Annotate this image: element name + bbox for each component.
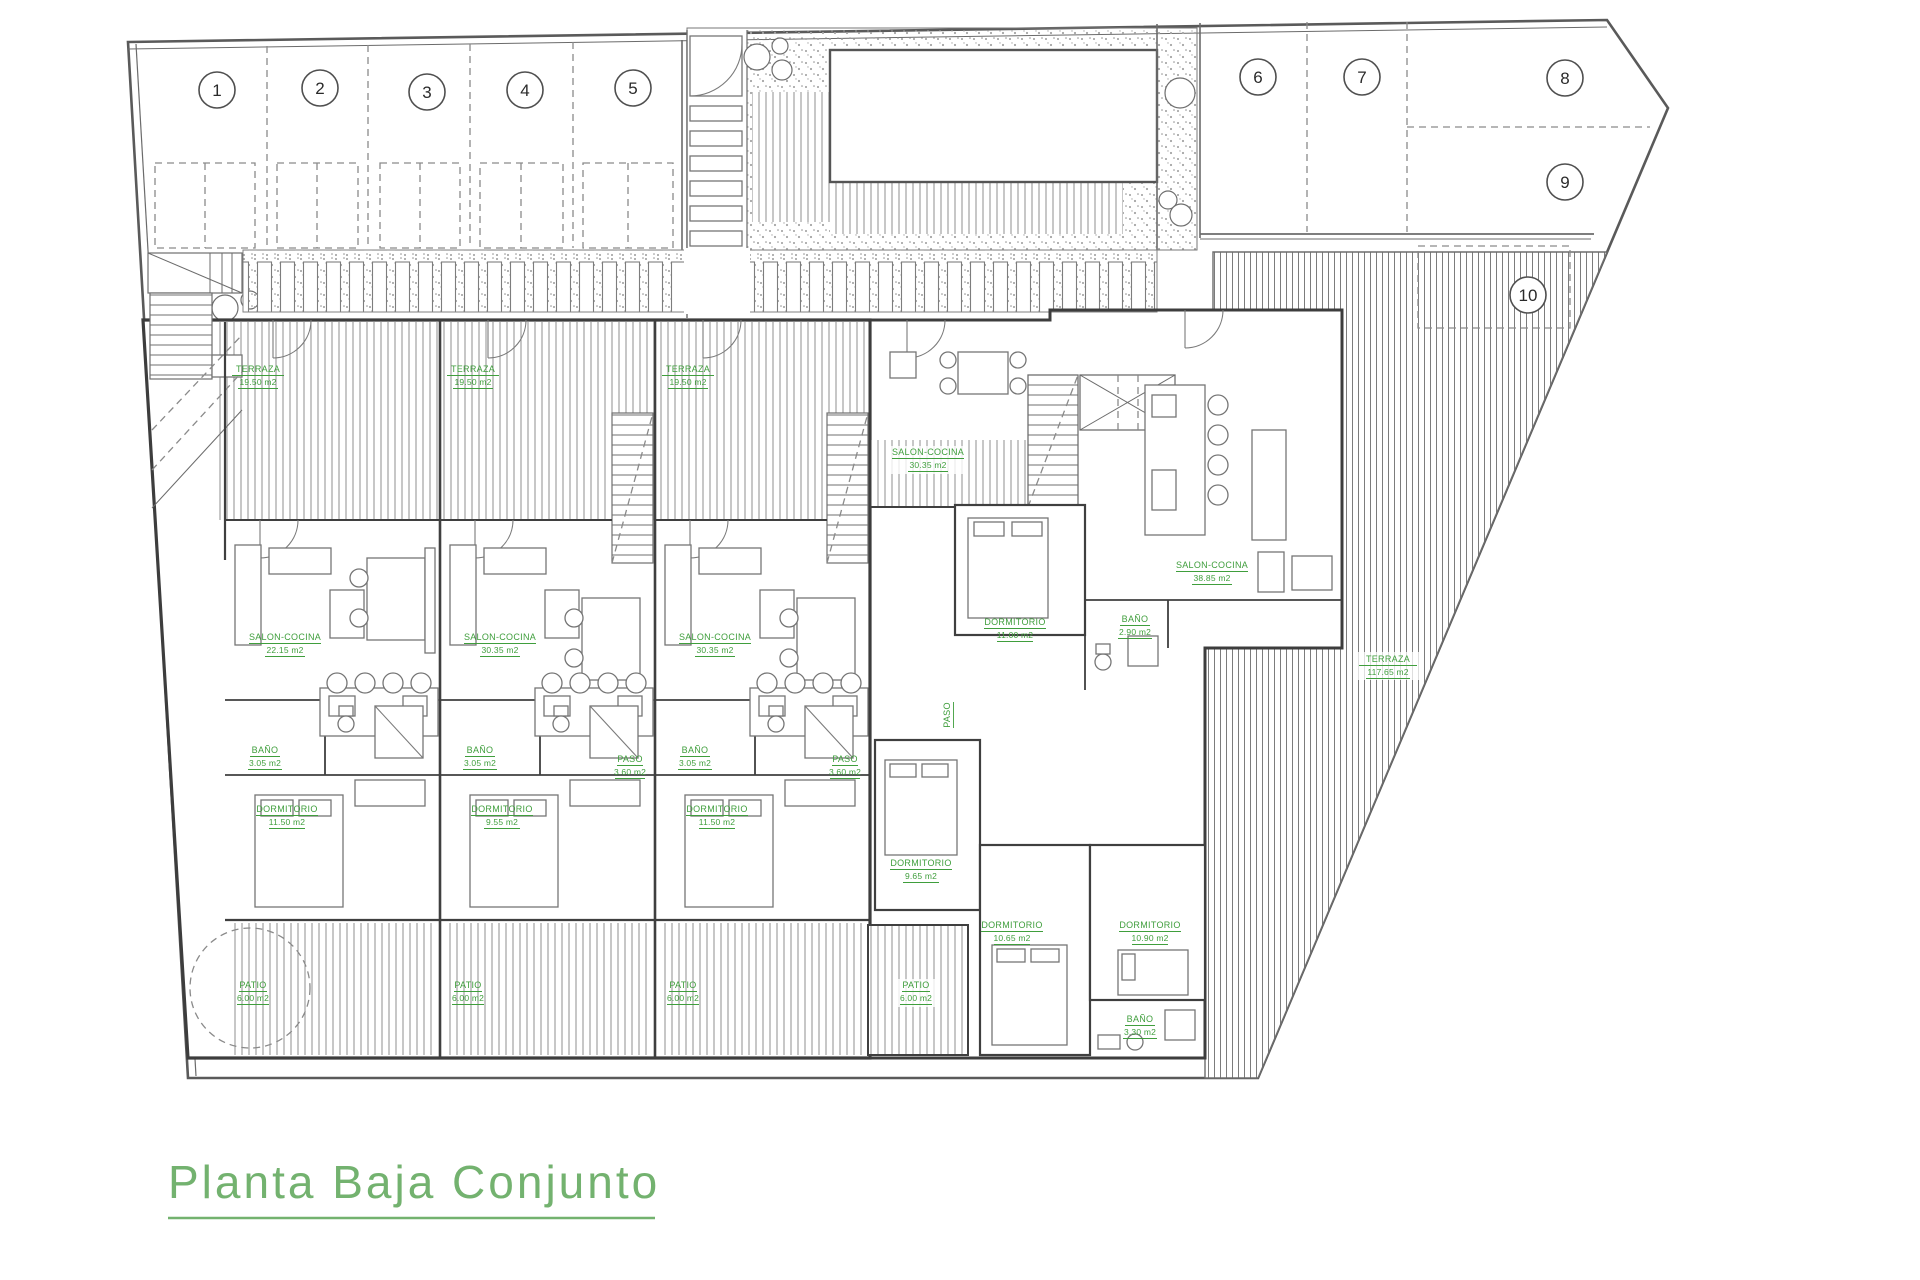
svg-text:6.00 m2: 6.00 m2 (452, 993, 484, 1003)
svg-text:SALON-COCINA: SALON-COCINA (464, 632, 536, 642)
drawing-title: Planta Baja Conjunto (168, 1156, 660, 1218)
parking-number-5: 5 (628, 79, 637, 98)
bedroom-c-furniture (992, 945, 1067, 1045)
room-label-bano-1: BAÑO2.90 m2 (1118, 614, 1152, 639)
svg-text:6.00 m2: 6.00 m2 (237, 993, 269, 1003)
parking-space-2: 2 (302, 70, 338, 106)
bedroom-b-furniture (885, 760, 957, 855)
svg-text:30.35 m2: 30.35 m2 (909, 460, 946, 470)
room-label-patio: PATIO6.00 m2 (452, 980, 484, 1005)
svg-text:30.35 m2: 30.35 m2 (481, 645, 518, 655)
svg-text:SALON-COCINA: SALON-COCINA (679, 632, 751, 642)
room-label-bano: BAÑO3.05 m2 (463, 745, 497, 770)
parking-number-3: 3 (422, 83, 431, 102)
svg-text:9.65 m2: 9.65 m2 (905, 871, 937, 881)
svg-text:11.50 m2: 11.50 m2 (269, 817, 305, 827)
bedroom-a-furniture (968, 518, 1048, 618)
svg-text:2.90 m2: 2.90 m2 (1119, 627, 1151, 637)
svg-text:9.55 m2: 9.55 m2 (486, 817, 518, 827)
parking-number-8: 8 (1560, 69, 1569, 88)
room-label-paso: PASO3.60 m2 (829, 754, 861, 779)
svg-text:DORMITORIO: DORMITORIO (984, 617, 1045, 627)
room-label-bano-2: BAÑO3.30 m2 (1123, 1014, 1157, 1039)
svg-text:DORMITORIO: DORMITORIO (256, 804, 317, 814)
room-label-bano: BAÑO3.05 m2 (678, 745, 712, 770)
svg-text:6.00 m2: 6.00 m2 (667, 993, 699, 1003)
svg-text:TERRAZA: TERRAZA (666, 364, 710, 374)
svg-text:10.90 m2: 10.90 m2 (1131, 933, 1168, 943)
svg-text:TERRAZA: TERRAZA (236, 364, 280, 374)
floor-plan-drawing: 1 2 3 4 5 (0, 0, 1920, 1280)
svg-text:11.00 m2: 11.00 m2 (997, 630, 1033, 640)
svg-text:DORMITORIO: DORMITORIO (471, 804, 532, 814)
room-label-terraza-big: TERRAZA 117.65 m2 (1354, 652, 1422, 680)
unit-terraces-hatch (215, 322, 870, 520)
page-title: Planta Baja Conjunto (168, 1156, 660, 1208)
svg-text:TERRAZA: TERRAZA (451, 364, 495, 374)
parking-number-7: 7 (1357, 68, 1366, 87)
pool-deck-left (752, 92, 830, 222)
pool-deck-bottom (830, 182, 1123, 234)
parking-number-6: 6 (1253, 68, 1262, 87)
parking-space-3: 3 (409, 74, 445, 110)
svg-text:6.00 m2: 6.00 m2 (900, 993, 932, 1003)
parking-space-8: 8 (1547, 60, 1583, 96)
svg-text:38.85 m2: 38.85 m2 (1193, 573, 1230, 583)
corner-stair (1028, 375, 1078, 507)
parking-space-1: 1 (199, 72, 235, 108)
svg-text:3.05 m2: 3.05 m2 (249, 758, 281, 768)
parking-number-1: 1 (212, 81, 221, 100)
room-label-paso-v: PASO (942, 702, 954, 728)
svg-text:PASO: PASO (832, 754, 858, 764)
svg-text:PASO: PASO (617, 754, 643, 764)
svg-text:DORMITORIO: DORMITORIO (1119, 920, 1180, 930)
room-label-bano: BAÑO3.05 m2 (248, 745, 282, 770)
svg-text:19.50 m2: 19.50 m2 (239, 377, 276, 387)
parking-number-9: 9 (1560, 173, 1569, 192)
svg-text:BAÑO: BAÑO (682, 745, 709, 755)
svg-text:PATIO: PATIO (902, 980, 929, 990)
svg-text:BAÑO: BAÑO (1127, 1014, 1154, 1024)
svg-text:SALON-COCINA: SALON-COCINA (249, 632, 321, 642)
room-label-paso: PASO3.60 m2 (614, 754, 646, 779)
parking-number-4: 4 (520, 81, 529, 100)
parking-space-5: 5 (615, 70, 651, 106)
room-label-terraza: TERRAZA19.50 m2 (662, 364, 714, 389)
svg-text:22.15 m2: 22.15 m2 (266, 645, 303, 655)
svg-text:3.60 m2: 3.60 m2 (614, 767, 646, 777)
svg-text:19.50 m2: 19.50 m2 (669, 377, 706, 387)
svg-text:3.30 m2: 3.30 m2 (1124, 1027, 1156, 1037)
room-label-patio: PATIO6.00 m2 (237, 980, 269, 1005)
svg-text:11.50 m2: 11.50 m2 (699, 817, 735, 827)
svg-text:PASO: PASO (942, 702, 952, 728)
svg-text:19.50 m2: 19.50 m2 (454, 377, 491, 387)
svg-text:30.35 m2: 30.35 m2 (696, 645, 733, 655)
svg-text:DORMITORIO: DORMITORIO (981, 920, 1042, 930)
room-label-patio: PATIO6.00 m2 (667, 980, 699, 1005)
svg-text:SALON-COCINA: SALON-COCINA (892, 447, 964, 457)
svg-text:TERRAZA: TERRAZA (1366, 654, 1410, 664)
parking-space-6: 6 (1240, 59, 1276, 95)
parking-space-9: 9 (1547, 164, 1583, 200)
bedroom-d-furniture (1118, 950, 1188, 995)
parking-space-4: 4 (507, 72, 543, 108)
svg-text:PATIO: PATIO (239, 980, 266, 990)
svg-text:BAÑO: BAÑO (467, 745, 494, 755)
parking-number-10: 10 (1519, 286, 1538, 305)
room-label-terraza: TERRAZA19.50 m2 (447, 364, 499, 389)
svg-text:117.65 m2: 117.65 m2 (1367, 667, 1408, 677)
svg-text:3.05 m2: 3.05 m2 (464, 758, 496, 768)
svg-text:3.60 m2: 3.60 m2 (829, 767, 861, 777)
svg-text:PATIO: PATIO (669, 980, 696, 990)
room-label-terraza: TERRAZA19.50 m2 (232, 364, 284, 389)
svg-text:BAÑO: BAÑO (1122, 614, 1149, 624)
svg-text:BAÑO: BAÑO (252, 745, 279, 755)
svg-text:10.65 m2: 10.65 m2 (993, 933, 1030, 943)
svg-text:PATIO: PATIO (454, 980, 481, 990)
pergola-louver-band (243, 248, 1157, 314)
parking-number-2: 2 (315, 79, 324, 98)
svg-text:DORMITORIO: DORMITORIO (686, 804, 747, 814)
svg-text:DORMITORIO: DORMITORIO (890, 858, 951, 868)
room-label-corner-patio: PATIO6.00 m2 (896, 979, 936, 1007)
swimming-pool (830, 50, 1157, 182)
svg-text:SALON-COCINA: SALON-COCINA (1176, 560, 1248, 570)
room-label-salon-nook: SALON-COCINA30.35 m2 (888, 446, 968, 474)
floor-plan-page: 1 2 3 4 5 (0, 0, 1920, 1280)
parking-space-7: 7 (1344, 59, 1380, 95)
svg-text:3.05 m2: 3.05 m2 (679, 758, 711, 768)
